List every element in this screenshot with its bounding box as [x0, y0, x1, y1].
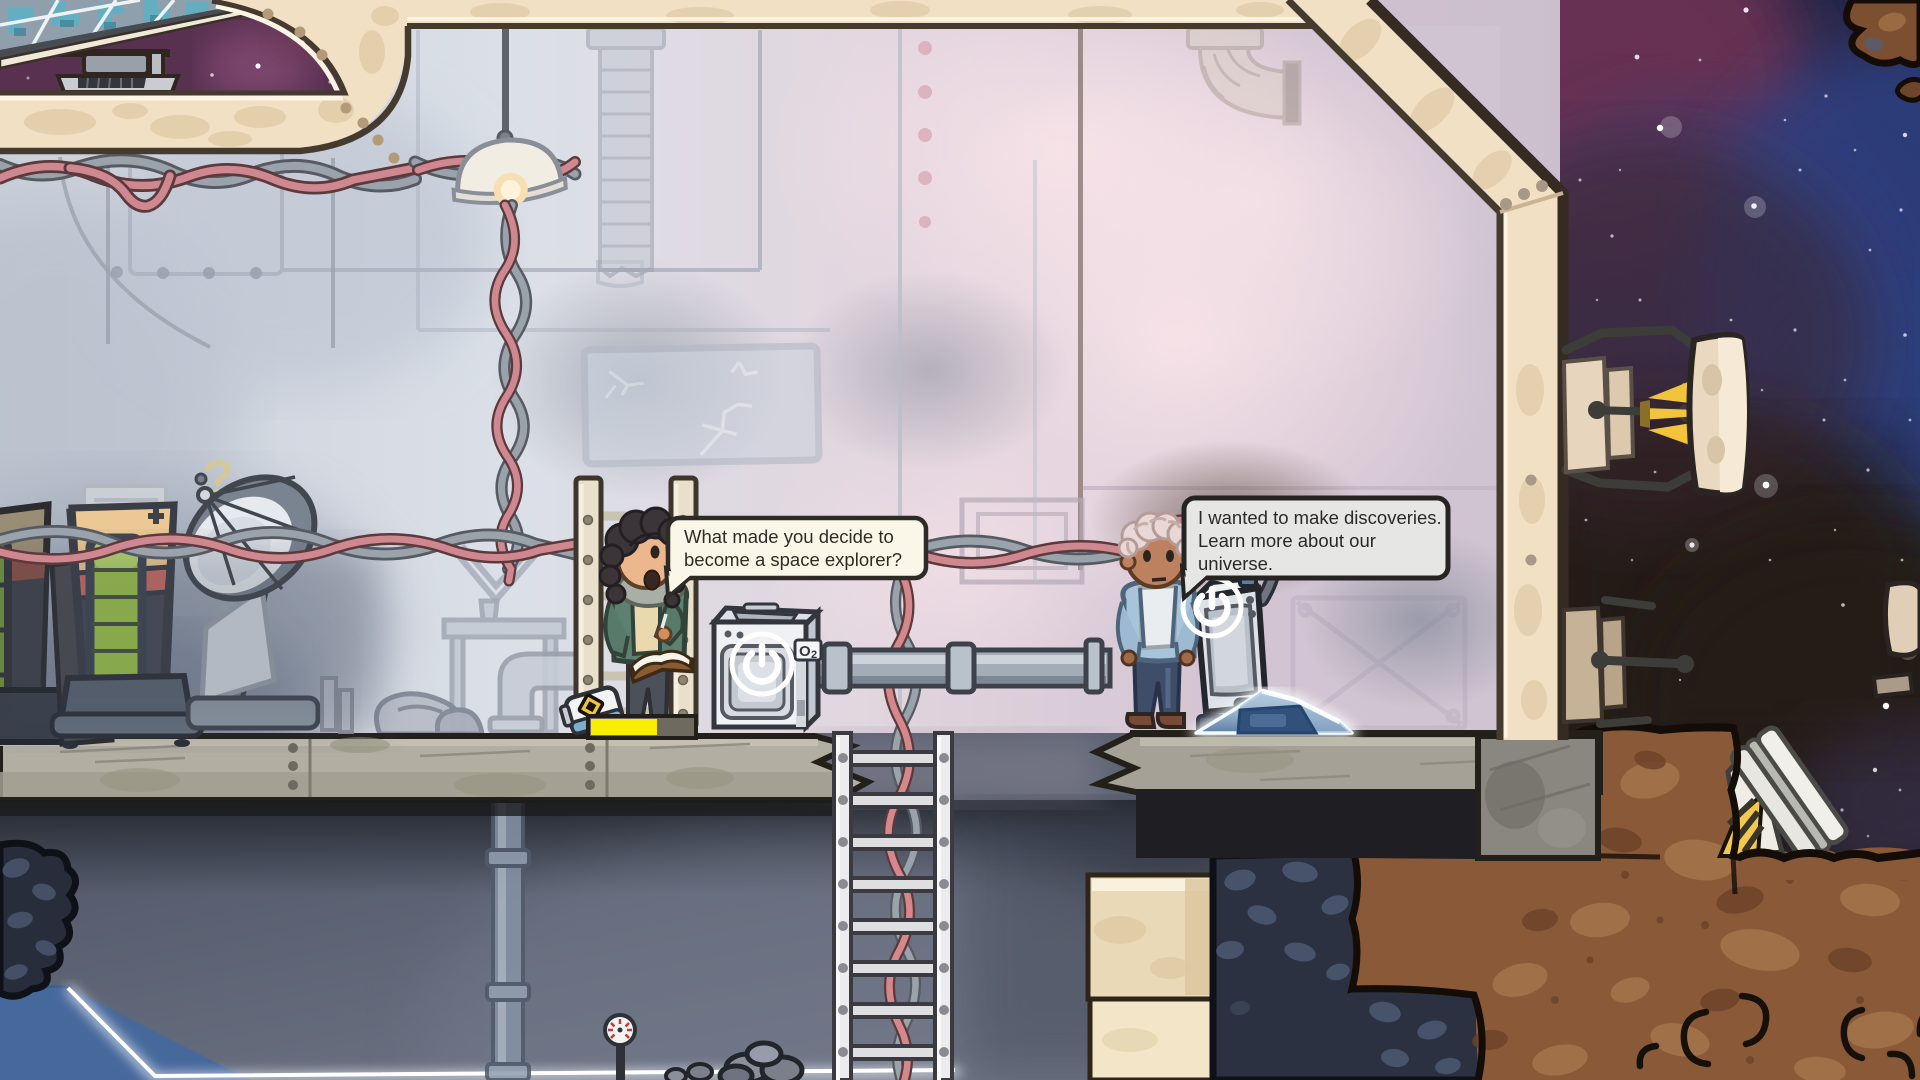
svg-text:What made you decide to: What made you decide to [684, 526, 894, 547]
svg-text:become a space explorer?: become a space explorer? [684, 549, 902, 570]
svg-text:Learn more about our: Learn more about our [1198, 530, 1376, 551]
svg-text:I wanted to make discoveries.: I wanted to make discoveries. [1198, 507, 1442, 528]
svg-text:2: 2 [811, 649, 817, 661]
svg-text:universe.: universe. [1198, 553, 1273, 574]
svg-text:O: O [799, 643, 811, 660]
